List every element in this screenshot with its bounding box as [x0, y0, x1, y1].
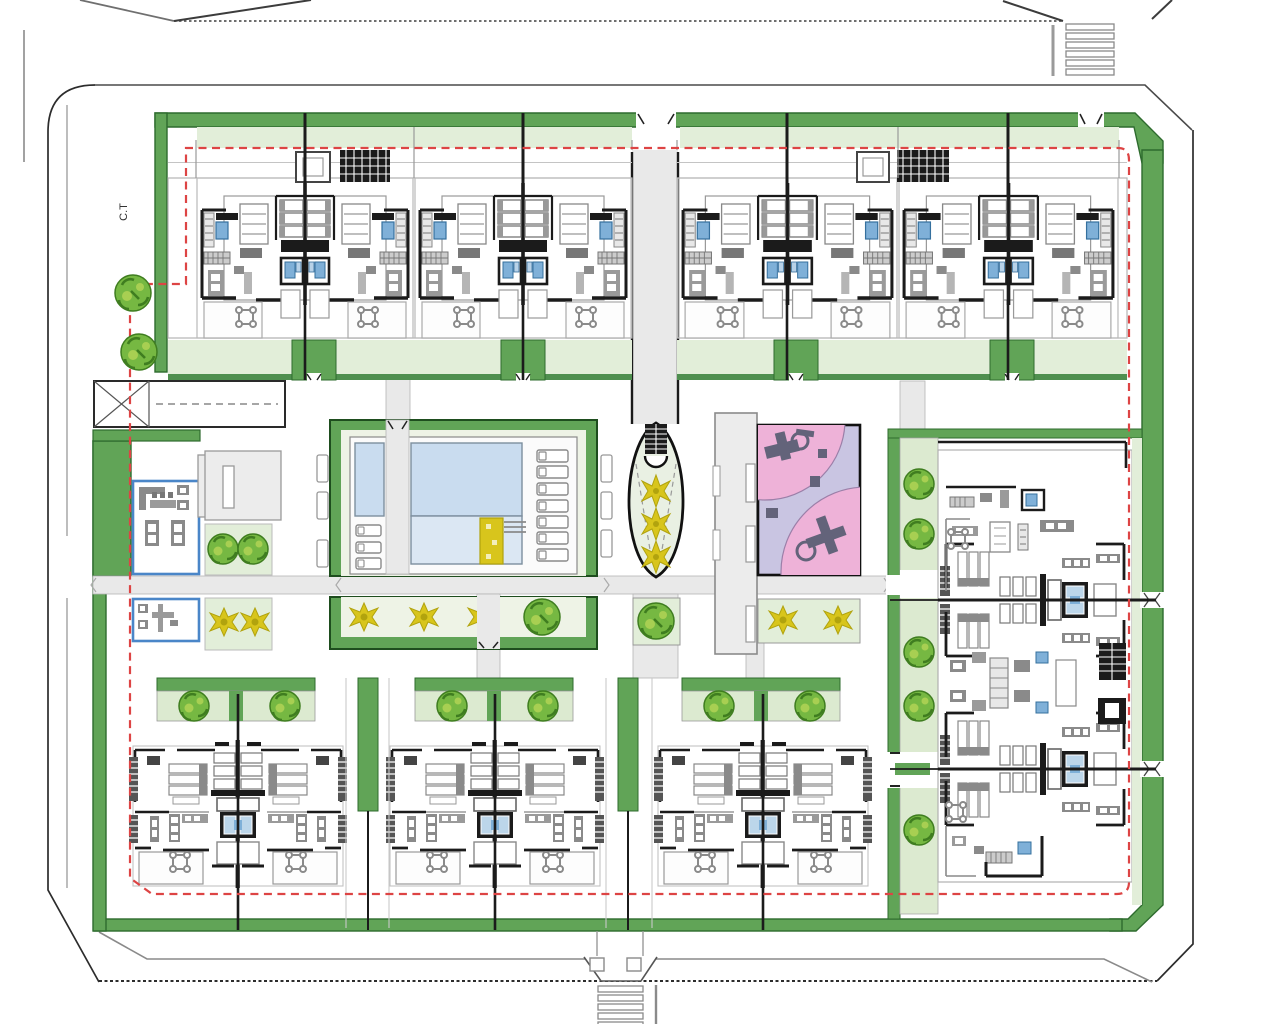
svg-text:C.T: C.T — [118, 203, 130, 221]
